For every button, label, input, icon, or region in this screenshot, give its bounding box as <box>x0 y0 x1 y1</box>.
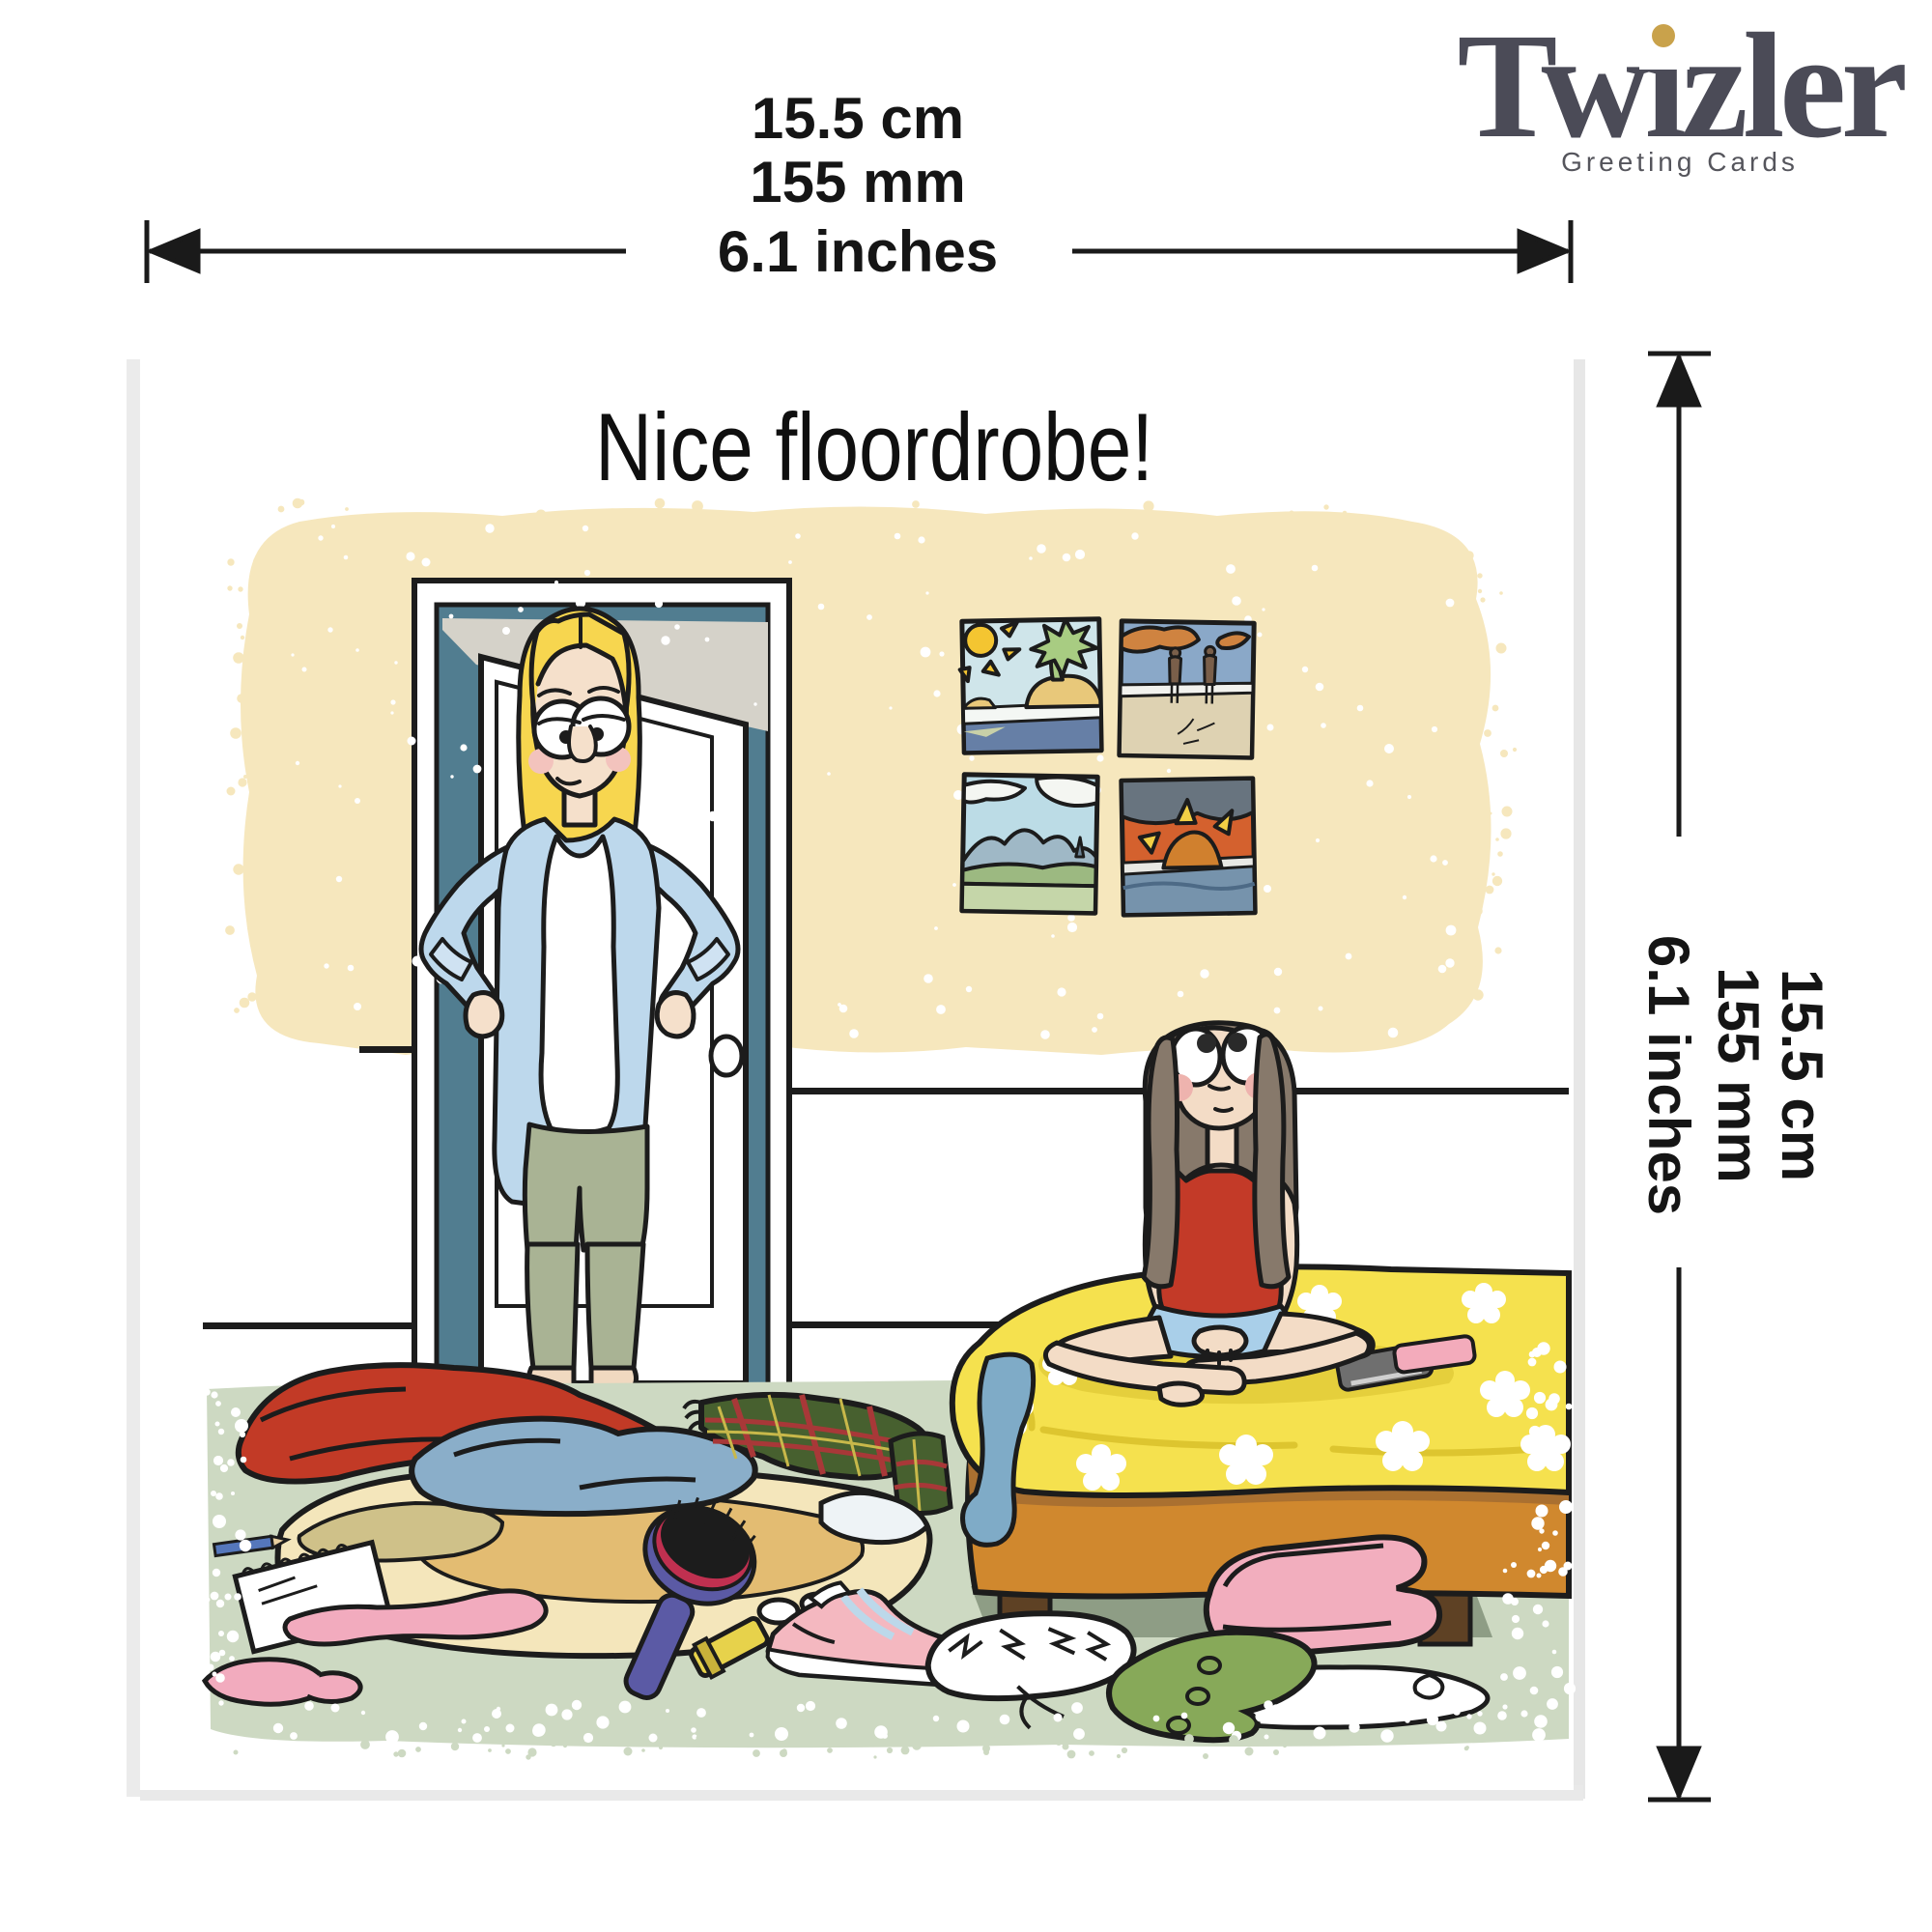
svg-text:6.1 inches: 6.1 inches <box>1636 935 1701 1215</box>
svg-text:Nice floordrobe!: Nice floordrobe! <box>595 393 1153 500</box>
svg-text:Greeting Cards: Greeting Cards <box>1561 147 1799 177</box>
svg-text:15.5 cm: 15.5 cm <box>752 86 964 151</box>
svg-text:15.5 cm: 15.5 cm <box>1770 969 1834 1181</box>
svg-text:155 mm: 155 mm <box>750 150 965 214</box>
svg-text:155 mm: 155 mm <box>1706 967 1771 1182</box>
svg-text:6.1 inches: 6.1 inches <box>718 219 998 284</box>
